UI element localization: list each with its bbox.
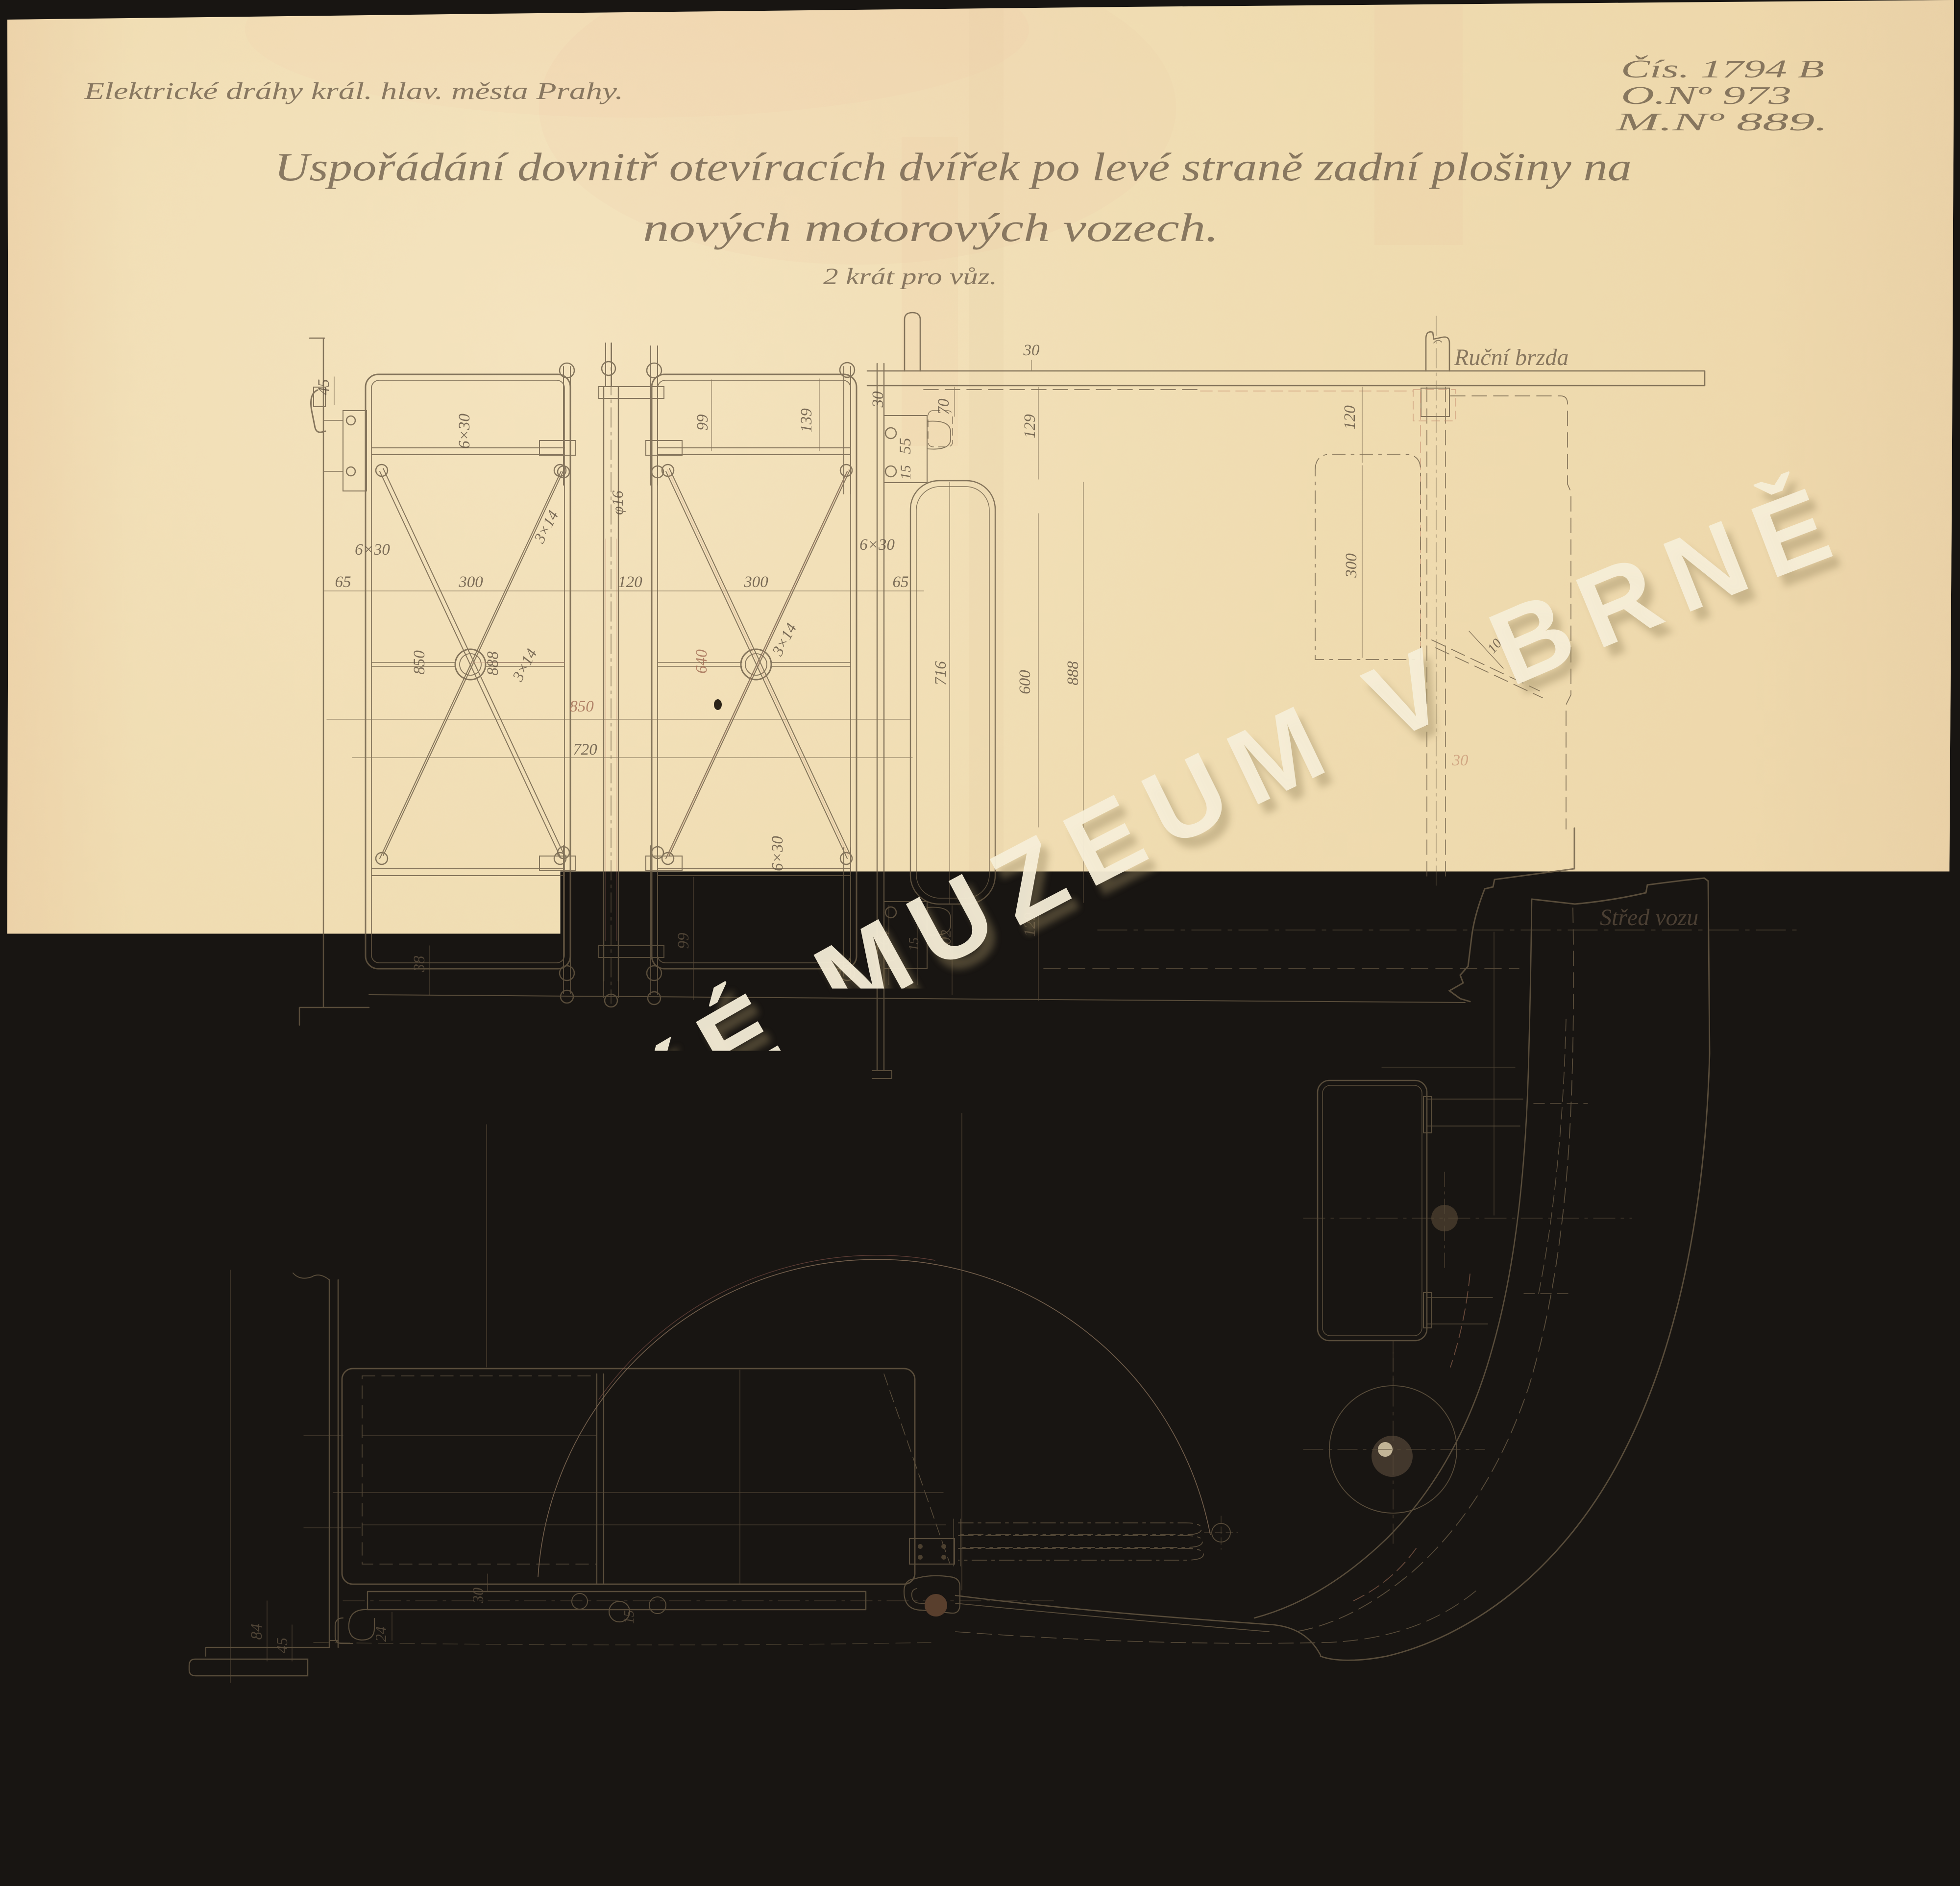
svg-text:99: 99 [694,415,711,431]
svg-text:K= 1:5: K= 1:5 [797,1117,901,1154]
svg-text:φ16: φ16 [609,490,626,515]
svg-text:30: 30 [869,391,887,408]
svg-text:84: 84 [248,1624,266,1640]
svg-text:816: 816 [643,1506,668,1524]
svg-text:Čís. 1794 B: Čís. 1794 B [1621,55,1824,83]
svg-text:M.Nº 889.: M.Nº 889. [1615,108,1828,136]
svg-text:30: 30 [1023,342,1040,359]
svg-text:nových motorových vozech.: nových motorových vozech. [643,205,1219,250]
svg-text:1972: 1972 [942,1317,959,1349]
svg-text:30: 30 [469,1588,487,1604]
svg-text:350: 350 [1337,1180,1355,1205]
svg-text:850: 850 [648,1470,672,1488]
svg-text:850: 850 [411,650,428,675]
svg-text:6×30: 6×30 [769,836,786,871]
svg-text:120: 120 [618,573,642,591]
svg-text:888: 888 [1064,661,1082,686]
svg-text:150: 150 [1367,1233,1392,1251]
svg-text:Ruční brzda: Ruční brzda [1454,344,1568,370]
svg-text:6×30: 6×30 [859,536,895,554]
svg-text:600: 600 [1016,670,1034,694]
svg-text:850: 850 [569,698,594,715]
svg-text:888: 888 [484,651,502,676]
svg-text:2130: 2130 [210,1485,227,1518]
svg-text:720: 720 [573,741,597,759]
svg-text:45: 45 [315,379,333,395]
svg-text:70: 70 [935,398,953,415]
svg-text:38: 38 [411,955,428,973]
svg-text:120: 120 [1341,405,1359,430]
svg-text:300: 300 [743,573,768,591]
svg-text:300: 300 [1343,553,1360,578]
svg-text:640: 640 [693,649,710,674]
svg-text:24: 24 [372,1626,390,1642]
svg-text:Střed vozu: Střed vozu [1600,905,1698,931]
svg-text:99: 99 [675,933,692,949]
svg-text:Elektrické dráhy král. hlav. m: Elektrické dráhy král. hlav. města Prahy… [84,77,623,104]
svg-text:Trychtýř: Trychtýř [1356,1411,1427,1434]
svg-text:2 krát pro vůz.: 2 krát pro vůz. [823,264,997,290]
svg-text:317: 317 [719,1458,737,1484]
svg-text:139: 139 [798,408,815,433]
svg-text:6×30: 6×30 [355,541,390,559]
svg-text:300: 300 [458,573,483,591]
svg-text:písek: písek [1349,1133,1388,1153]
svg-text:6×30: 6×30 [456,414,473,449]
svg-text:30: 30 [1452,752,1469,769]
svg-text:65: 65 [893,573,909,591]
svg-text:716: 716 [932,661,950,686]
svg-text:23: 23 [310,1413,326,1431]
svg-text:55: 55 [897,438,914,454]
svg-text:Uspořádání dovnitř otevíracích: Uspořádání dovnitř otevíracích dvířek po… [274,145,1632,189]
svg-text:15: 15 [622,1610,637,1624]
svg-text:65: 65 [335,573,351,591]
svg-text:O.Nº 973: O.Nº 973 [1621,82,1791,110]
svg-text:400: 400 [1475,1025,1493,1050]
svg-text:129: 129 [1021,414,1039,439]
svg-text:Truhlík na: Truhlík na [1337,1107,1412,1127]
svg-text:Dvířka složená a zajištěná: Dvířka složená a zajištěná [972,1498,1198,1523]
svg-text:15: 15 [898,465,914,480]
svg-text:370: 370 [442,1413,467,1431]
svg-text:45: 45 [273,1638,291,1653]
